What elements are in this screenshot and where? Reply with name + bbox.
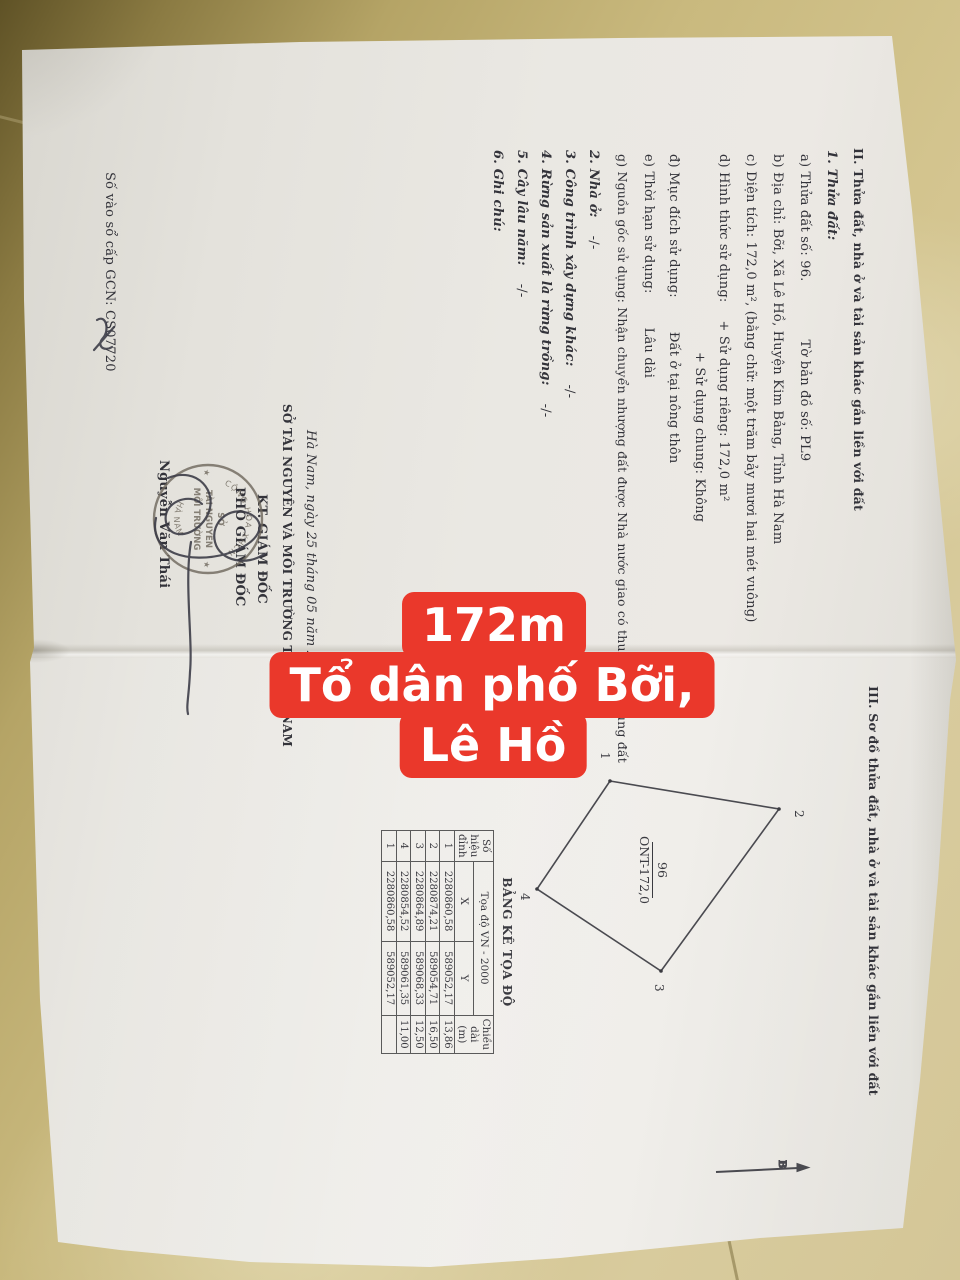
col-header-x: X [454, 861, 474, 941]
col-header-y: Y [454, 941, 474, 1015]
table-cell: 2280854,52 [396, 861, 411, 941]
table-cell: 589068,33 [411, 941, 426, 1015]
table-cell: 589052,17 [382, 941, 397, 1015]
table-cell: 1 [382, 831, 397, 862]
north-label: B [776, 1160, 787, 1168]
table-cell: 2280864,89 [411, 861, 426, 941]
vertex-dot [777, 807, 781, 811]
table-cell: 3 [411, 831, 426, 862]
vertex-dot [608, 779, 612, 783]
table-cell: 589054,71 [425, 941, 440, 1015]
table-cell: 2280860,58 [382, 861, 397, 941]
coordinate-table-body: 12280860,58589052,1713,8622280874,215890… [382, 831, 455, 1054]
table-row: 42280854,52589061,3511,00 [396, 831, 411, 1054]
vertex-dot [535, 887, 539, 891]
coordinate-table: Số hiệuđỉnh Tọa độ VN - 2000 Chiều dài(m… [381, 830, 494, 1054]
photo-of-land-certificate: II. Thửa đất, nhà ở và tài sản khác gắn … [0, 0, 960, 1280]
table-cell [382, 1015, 397, 1053]
table-cell: 12,50 [411, 1015, 426, 1053]
vertex-label: 3 [652, 984, 666, 992]
col-header-coord: Tọa độ VN - 2000 [474, 861, 494, 1015]
table-cell: 16,50 [425, 1015, 440, 1053]
parcel-number-label: 96 ONT-172,0 [637, 833, 670, 907]
table-cell: 589052,17 [440, 941, 455, 1015]
parcel-number: 96 [652, 842, 670, 898]
table-cell: 2280874,21 [425, 861, 440, 941]
table-cell: 589061,35 [396, 941, 411, 1015]
col-header-vertex: Số hiệuđỉnh [454, 831, 493, 862]
parcel-code-area: ONT-172,0 [637, 836, 652, 904]
coordinate-table-block: BẢNG KÊ TỌA ĐỘ Số hiệuđỉnh Tọa độ VN - 2… [381, 812, 514, 1054]
table-row: 22280874,21589054,7116,50 [425, 831, 440, 1054]
table-cell: 1 [440, 831, 455, 862]
table-row: 32280864,89589068,3312,50 [411, 831, 426, 1054]
table-cell: 11,00 [396, 1015, 411, 1053]
table-cell: 2280860,58 [440, 861, 455, 941]
parcel-polygon-svg: B 1234 [0, 0, 960, 1280]
vertex-label: 2 [792, 810, 806, 818]
table-cell: 4 [396, 831, 411, 862]
coordinate-table-title: BẢNG KÊ TỌA ĐỘ [500, 830, 514, 1054]
north-arrow: B [716, 1160, 809, 1172]
vertex-label: 1 [598, 752, 612, 760]
vertex-dot [659, 969, 663, 973]
col-header-length: Chiều dài(m) [454, 1015, 493, 1053]
table-cell: 13,86 [440, 1015, 455, 1053]
table-row: 12280860,58589052,17 [382, 831, 397, 1054]
table-row: 12280860,58589052,1713,86 [440, 831, 455, 1054]
table-cell: 2 [425, 831, 440, 862]
vertex-label: 4 [518, 893, 532, 901]
